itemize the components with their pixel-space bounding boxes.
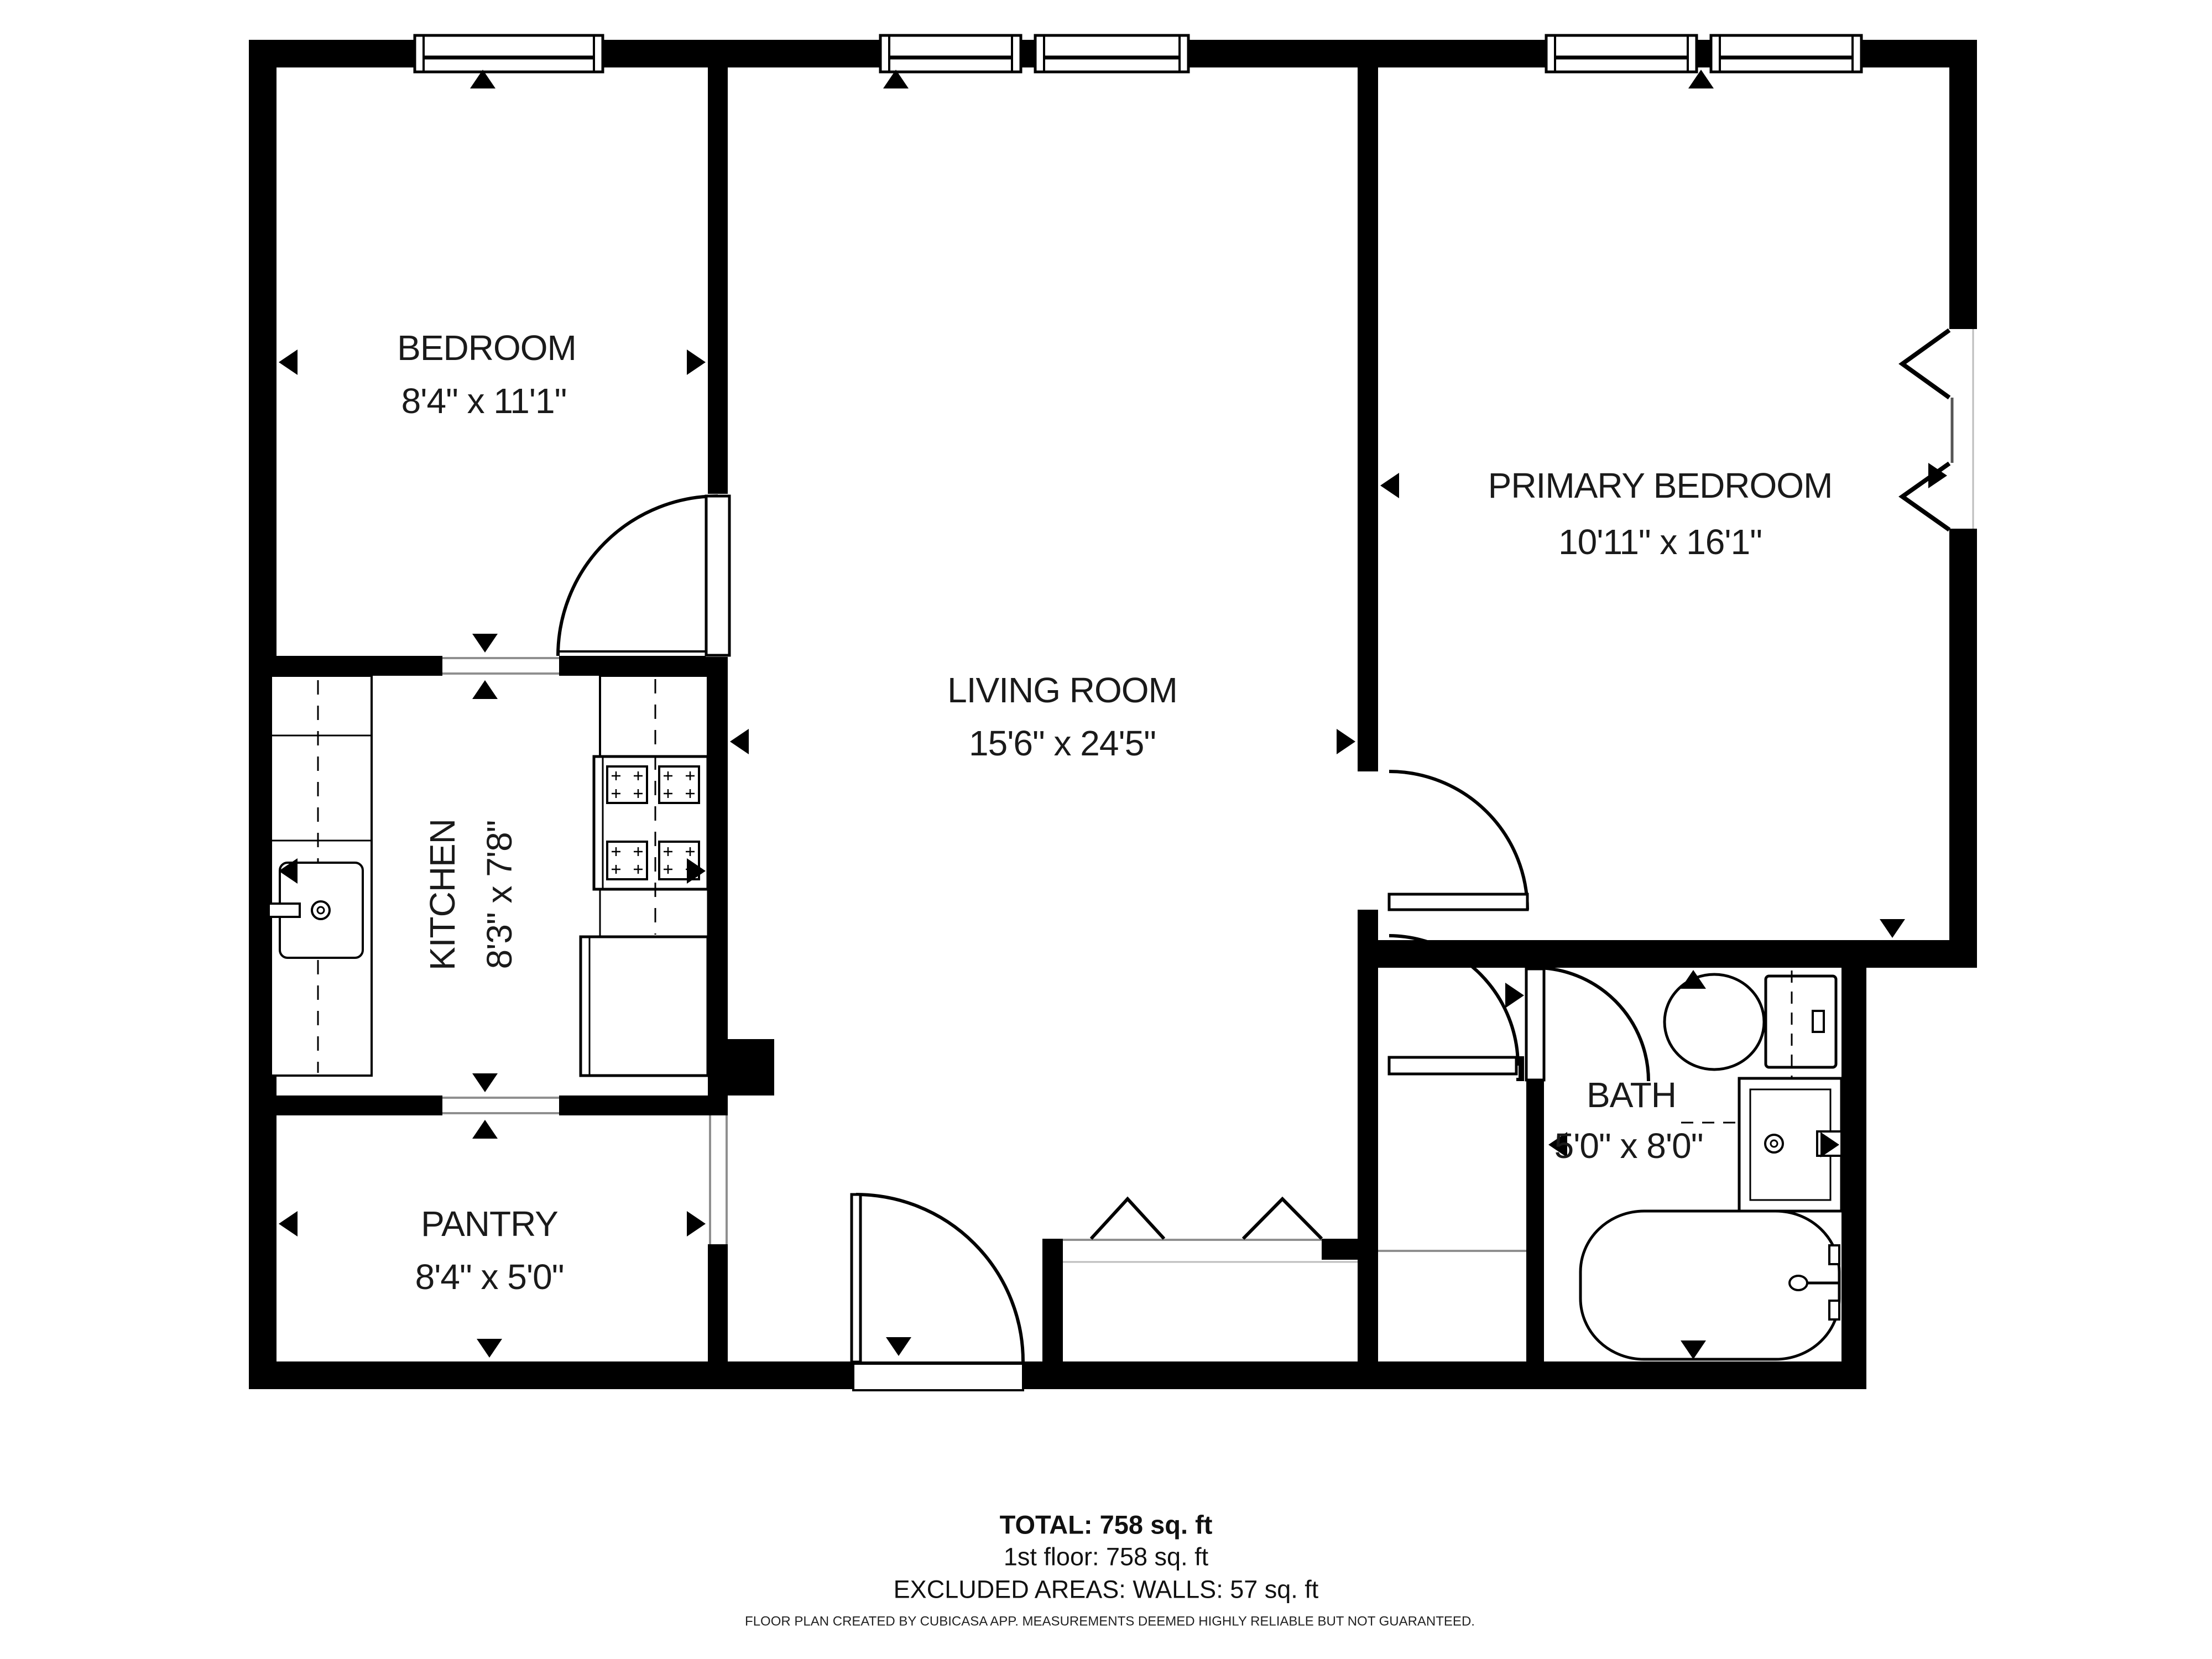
- room-dims-primary-bedroom: 10'11" x 16'1": [1558, 522, 1762, 562]
- wall-bottom: [249, 1361, 1866, 1389]
- room-dims-living-room: 15'6" x 24'5": [969, 723, 1156, 763]
- arrow-right-icon: [1505, 983, 1524, 1008]
- sink-handle-icon: [269, 904, 300, 917]
- arrow-down-icon: [886, 1337, 911, 1356]
- wall-closet-east: [1358, 1076, 1378, 1361]
- floor-area-text: 1st floor: 758 sq. ft: [1004, 1543, 1209, 1571]
- door-leaf: [1389, 1057, 1516, 1074]
- wall-bath-west: [1526, 1081, 1544, 1361]
- wall-kitchen-living: [708, 676, 728, 1095]
- arrow-right-icon: [687, 349, 706, 375]
- floor-plan: BEDROOM 8'4" x 11'1" LIVING ROOM 15'6" x…: [0, 0, 2212, 1659]
- fridge-icon: [581, 937, 708, 1076]
- room-dims-bath: 5'0" x 8'0": [1554, 1126, 1703, 1166]
- arrow-right-icon: [1337, 729, 1355, 754]
- bathtub-icon: [1580, 1211, 1839, 1359]
- bedroom-door: [558, 494, 730, 657]
- door-leaf: [852, 1194, 860, 1362]
- bifold-door-icon: [1091, 1199, 1164, 1239]
- door-leaf: [1526, 969, 1544, 1080]
- arrow-right-icon: [687, 1211, 706, 1237]
- room-label-kitchen: KITCHEN: [422, 819, 462, 971]
- wall-kitchen-bottom-left: [249, 1095, 442, 1115]
- measurement-arrows: [279, 70, 1947, 1359]
- wall-primary-south: [1358, 940, 1977, 968]
- wall-closet-west: [1042, 1239, 1063, 1361]
- entry-threshold: [853, 1364, 1023, 1390]
- exterior-walls: [249, 40, 1977, 1389]
- window-icon-primary-2: [1711, 35, 1861, 72]
- wall-hall-west: [1358, 910, 1378, 1076]
- door-leaf: [1389, 894, 1527, 910]
- wall-kitchen-top-left: [249, 656, 442, 676]
- excluded-area-text: EXCLUDED AREAS: WALLS: 57 sq. ft: [894, 1575, 1319, 1604]
- room-dims-kitchen: 8'3" x 7'8": [479, 821, 519, 969]
- kitchen-counter-mid: [600, 889, 708, 937]
- arrow-down-icon: [477, 1339, 502, 1358]
- primary-bedroom-door: [1355, 771, 1527, 910]
- wall-right-lower: [1949, 529, 1977, 968]
- bath-door: [1524, 968, 1648, 1081]
- wall-closet-stub: [1322, 1239, 1358, 1260]
- arrow-up-icon: [472, 1120, 498, 1139]
- disclaimer-text: FLOOR PLAN CREATED BY CUBICASA APP. MEAS…: [745, 1614, 1475, 1629]
- arrow-down-icon: [472, 634, 498, 653]
- arrow-up-icon: [472, 680, 498, 699]
- wall-kitchen-bottom-right: [559, 1095, 728, 1115]
- window-icon-bedroom: [415, 35, 603, 72]
- door-swing-arc: [558, 496, 718, 656]
- total-area-text: TOTAL: 758 sq. ft: [1000, 1510, 1213, 1540]
- kitchen-cabinet: [600, 676, 708, 757]
- bifold-door-icon: [1243, 1199, 1322, 1239]
- door-swing-arc: [1389, 771, 1527, 910]
- window-icon-living-2: [1035, 35, 1188, 72]
- door-leaf: [706, 496, 729, 655]
- door-swing-arc: [1535, 968, 1648, 1081]
- closet-bifold-doors: [1063, 1199, 1358, 1262]
- area-summary: TOTAL: 758 sq. ft 1st floor: 758 sq. ft …: [745, 1510, 1475, 1629]
- wall-chase: [728, 1039, 774, 1095]
- arrow-down-icon: [1880, 919, 1905, 938]
- wall-right-upper: [1949, 40, 1977, 329]
- wall-bath-east: [1841, 968, 1866, 1361]
- door-swing-arc: [856, 1194, 1023, 1361]
- room-dims-bedroom: 8'4" x 11'1": [401, 381, 567, 421]
- wall-living-primary: [1358, 67, 1378, 771]
- window-icon-living-1: [880, 35, 1021, 72]
- arrow-left-icon: [730, 729, 749, 754]
- interior-walls: [249, 67, 1977, 1361]
- window-icon-primary-1: [1546, 35, 1697, 72]
- wall-kitchen-top-right: [559, 656, 728, 676]
- bay-window-icon: [1902, 329, 1973, 530]
- room-label-bedroom: BEDROOM: [397, 328, 576, 368]
- windows: [415, 35, 1973, 530]
- tub-spout-icon: [1790, 1276, 1807, 1290]
- arrow-left-icon: [279, 1211, 298, 1237]
- arrow-down-icon: [472, 1073, 498, 1092]
- room-label-living-room: LIVING ROOM: [947, 670, 1177, 710]
- room-label-pantry: PANTRY: [421, 1204, 558, 1244]
- room-label-bath: BATH: [1587, 1075, 1676, 1115]
- room-label-primary-bedroom: PRIMARY BEDROOM: [1488, 466, 1833, 505]
- arrow-left-icon: [1380, 473, 1399, 498]
- wall-pantry-living: [708, 1244, 728, 1361]
- room-dims-pantry: 8'4" x 5'0": [415, 1257, 564, 1297]
- wall-bedroom-living: [708, 67, 728, 495]
- arrow-left-icon: [279, 349, 298, 375]
- entry-door: [852, 1194, 1023, 1390]
